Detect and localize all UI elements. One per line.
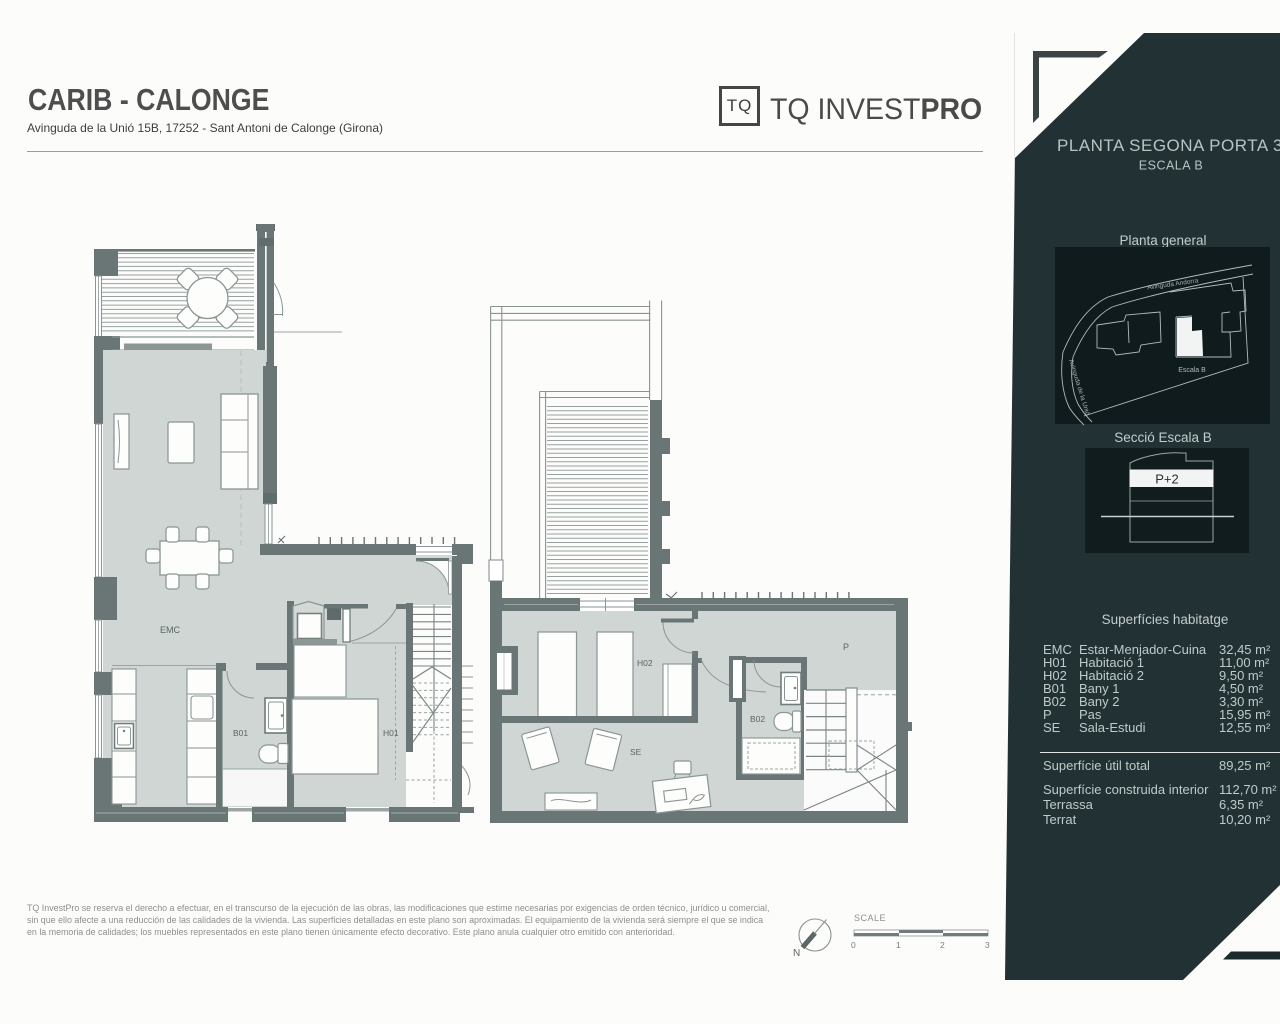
svg-text:Superfície útil total: Superfície útil total (1043, 758, 1150, 773)
svg-text:112,70 m²: 112,70 m² (1219, 782, 1277, 797)
svg-text:12,55 m²: 12,55 m² (1219, 720, 1271, 735)
svg-text:SE: SE (1043, 720, 1061, 735)
svg-text:Superfície construida interior: Superfície construida interior (1043, 782, 1209, 797)
svg-text:PLANTA SEGONA PORTA 3: PLANTA SEGONA PORTA 3 (1057, 136, 1280, 155)
svg-text:Terrassa: Terrassa (1043, 797, 1094, 812)
svg-text:Escala B: Escala B (1178, 367, 1206, 374)
svg-text:89,25 m²: 89,25 m² (1219, 758, 1271, 773)
svg-text:P+2: P+2 (1155, 472, 1179, 487)
svg-text:6,35 m²: 6,35 m² (1219, 797, 1264, 812)
svg-text:Terrat: Terrat (1043, 812, 1077, 827)
svg-text:Superfícies habitatge: Superfícies habitatge (1102, 612, 1229, 627)
svg-text:10,20 m²: 10,20 m² (1219, 812, 1271, 827)
svg-text:Sala-Estudi: Sala-Estudi (1079, 720, 1146, 735)
svg-text:Planta general: Planta general (1119, 233, 1206, 248)
svg-text:Secció Escala B: Secció Escala B (1114, 430, 1212, 445)
svg-text:ESCALA B: ESCALA B (1139, 159, 1203, 173)
